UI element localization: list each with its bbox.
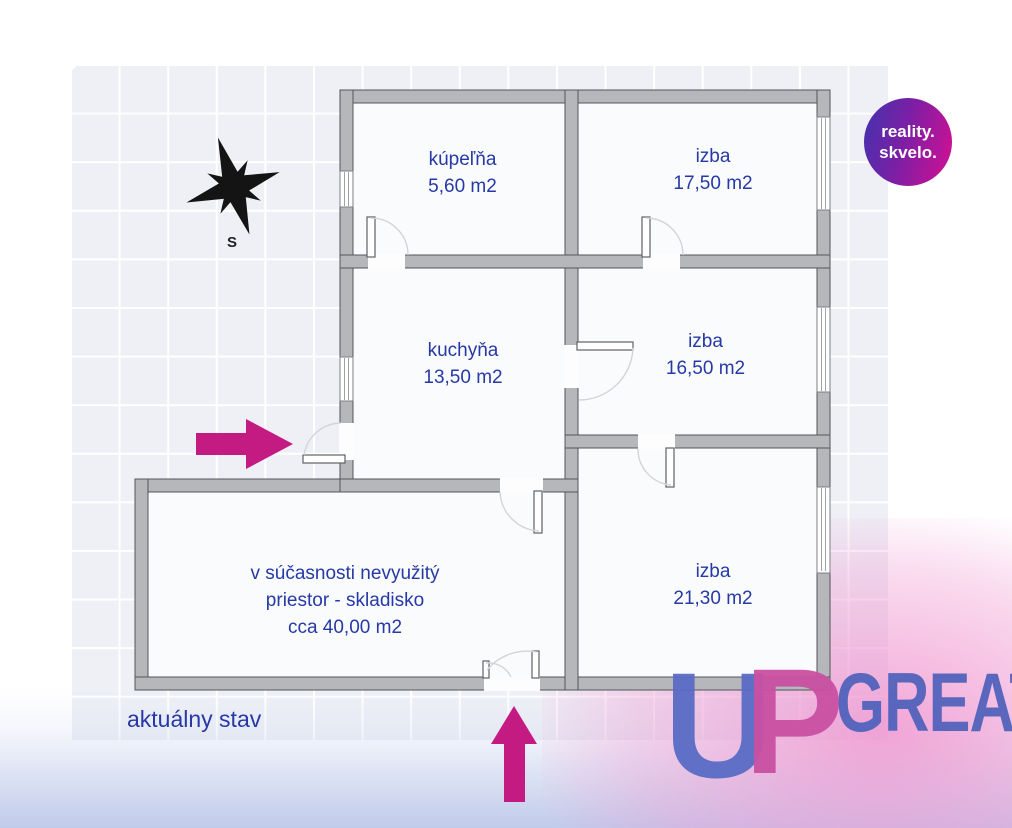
compass-label: S <box>227 234 237 251</box>
badge-line1: reality. <box>881 121 935 142</box>
room-label-kupelna: kúpeľňa 5,60 m2 <box>375 146 550 200</box>
window-izba1-east <box>817 117 830 210</box>
room-area: 13,50 m2 <box>373 364 553 391</box>
room-name: kuchyňa <box>373 337 553 364</box>
reality-skvelo-badge: reality. skvelo. <box>864 98 952 186</box>
window-izba2-east <box>817 307 830 392</box>
room-name: izba <box>628 143 798 170</box>
room-area: 17,50 m2 <box>628 170 798 197</box>
plan-caption: aktuálny stav <box>127 706 261 733</box>
room-label-izba-2: izba 16,50 m2 <box>618 328 793 382</box>
door-entrance-west <box>303 423 345 463</box>
room-area: 5,60 m2 <box>375 173 550 200</box>
room-area: cca 40,00 m2 <box>205 614 485 641</box>
room-label-kuchyna: kuchyňa 13,50 m2 <box>373 337 553 391</box>
entrance-arrow-left-icon <box>196 419 293 469</box>
room-area: 16,50 m2 <box>618 355 793 382</box>
room-label-izba-1: izba 17,50 m2 <box>628 143 798 197</box>
room-name: kúpeľňa <box>375 146 550 173</box>
window-kuchyna-west <box>340 357 353 401</box>
room-note-line2: priestor - skladisko <box>205 587 485 614</box>
watermark-letter-p: P <box>744 646 844 796</box>
entrance-arrow-bottom-icon <box>491 706 537 802</box>
room-area: 21,30 m2 <box>623 585 803 612</box>
compass-rose-icon <box>170 123 295 250</box>
room-note-line1: v súčasnosti nevyužitý <box>205 560 485 587</box>
window-kupelna-west <box>340 171 353 207</box>
floor-plan-page: kúpeľňa 5,60 m2 izba 17,50 m2 kuchyňa 13… <box>0 0 1012 828</box>
watermark-word-great: GREAT <box>836 656 1012 751</box>
room-name: izba <box>618 328 793 355</box>
badge-line2: skvelo. <box>879 142 937 163</box>
room-name: izba <box>623 558 803 585</box>
room-label-skladisko: v súčasnosti nevyužitý priestor - skladi… <box>205 560 485 641</box>
room-label-izba-3: izba 21,30 m2 <box>623 558 803 612</box>
window-izba3-east <box>817 487 830 573</box>
